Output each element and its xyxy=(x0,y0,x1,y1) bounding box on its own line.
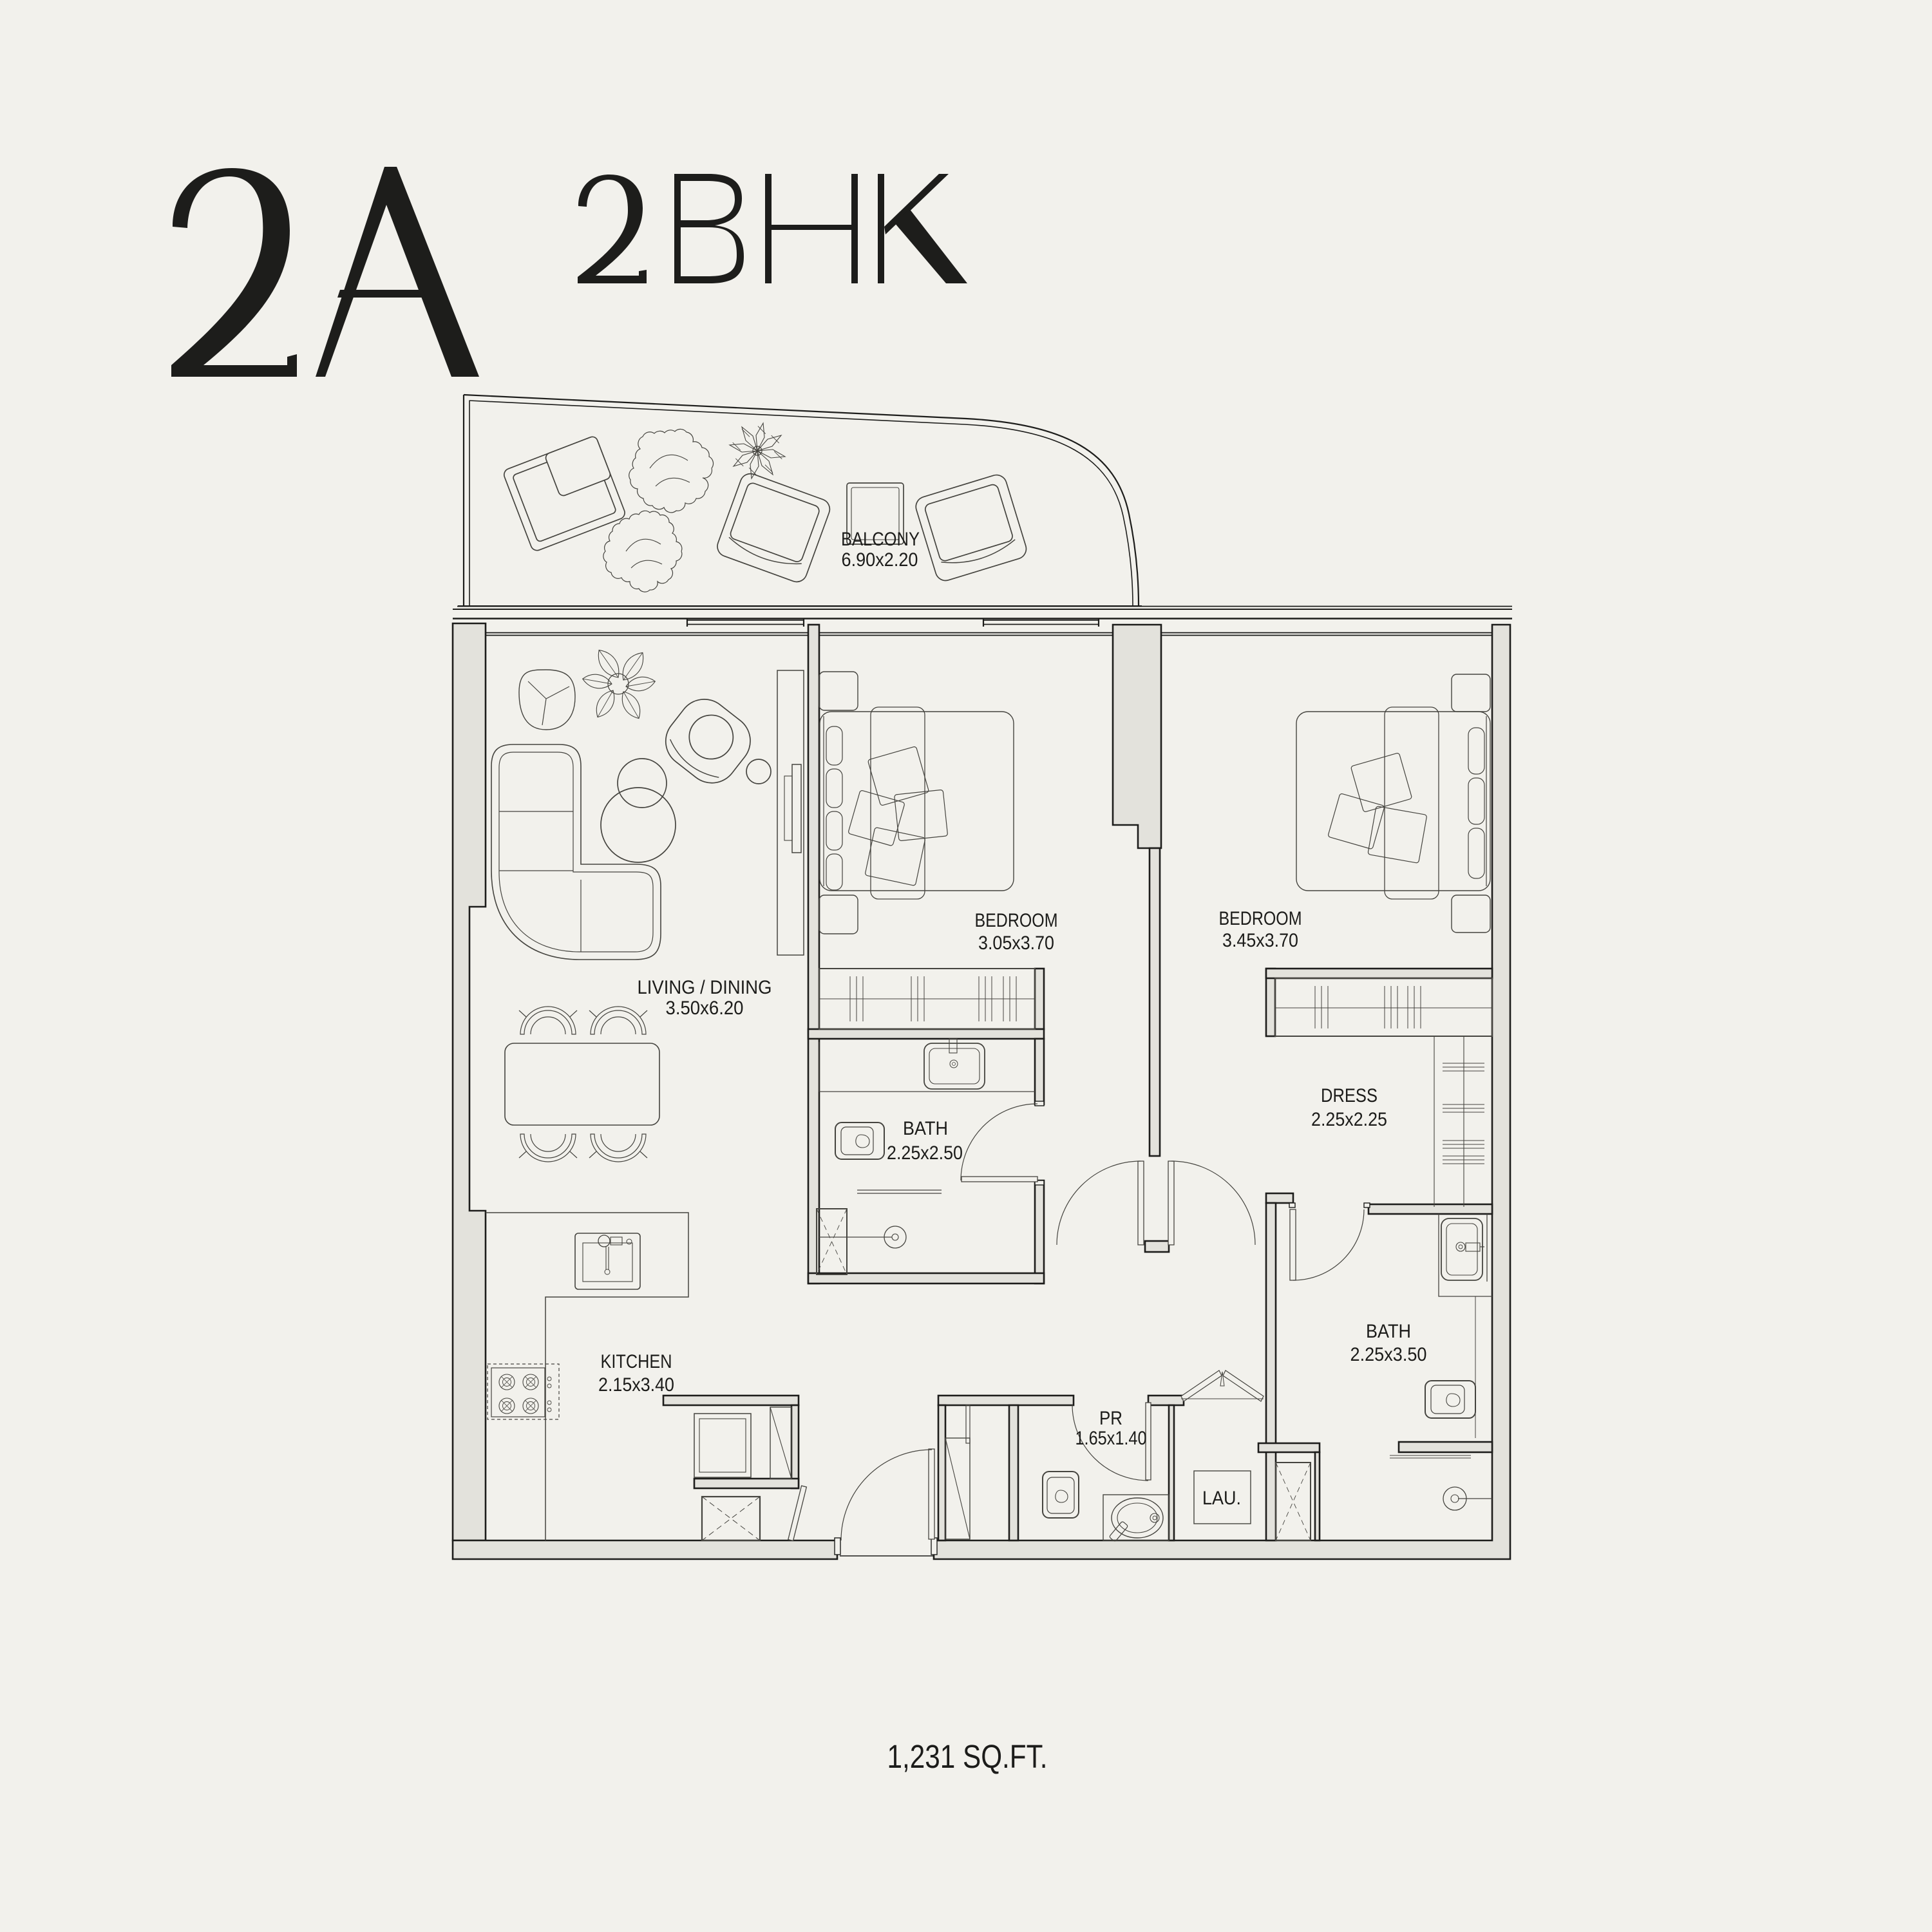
svg-text:3.45x3.70: 3.45x3.70 xyxy=(1222,930,1298,951)
svg-text:3.05x3.70: 3.05x3.70 xyxy=(978,933,1054,954)
svg-text:6.90x2.20: 6.90x2.20 xyxy=(842,549,918,571)
svg-text:3.50x6.20: 3.50x6.20 xyxy=(666,998,744,1019)
svg-text:2.25x2.25: 2.25x2.25 xyxy=(1311,1109,1387,1130)
svg-text:BEDROOM: BEDROOM xyxy=(1219,908,1302,929)
svg-text:1.65x1.40: 1.65x1.40 xyxy=(1075,1428,1147,1449)
svg-text:PR: PR xyxy=(1099,1408,1122,1429)
svg-text:LAU.: LAU. xyxy=(1202,1488,1241,1509)
svg-text:1,231 SQ.FT.: 1,231 SQ.FT. xyxy=(887,1738,1048,1775)
svg-text:2.15x3.40: 2.15x3.40 xyxy=(598,1374,674,1396)
svg-text:DRESS: DRESS xyxy=(1321,1085,1378,1106)
svg-text:KITCHEN: KITCHEN xyxy=(601,1351,672,1372)
svg-text:LIVING / DINING: LIVING / DINING xyxy=(638,977,772,998)
svg-text:2.25x3.50: 2.25x3.50 xyxy=(1350,1344,1427,1365)
svg-text:BATH: BATH xyxy=(903,1118,948,1139)
svg-text:BEDROOM: BEDROOM xyxy=(975,910,1058,931)
svg-text:BALCONY: BALCONY xyxy=(841,529,920,550)
svg-text:BATH: BATH xyxy=(1366,1321,1411,1342)
svg-text:2.25x2.50: 2.25x2.50 xyxy=(887,1142,963,1164)
